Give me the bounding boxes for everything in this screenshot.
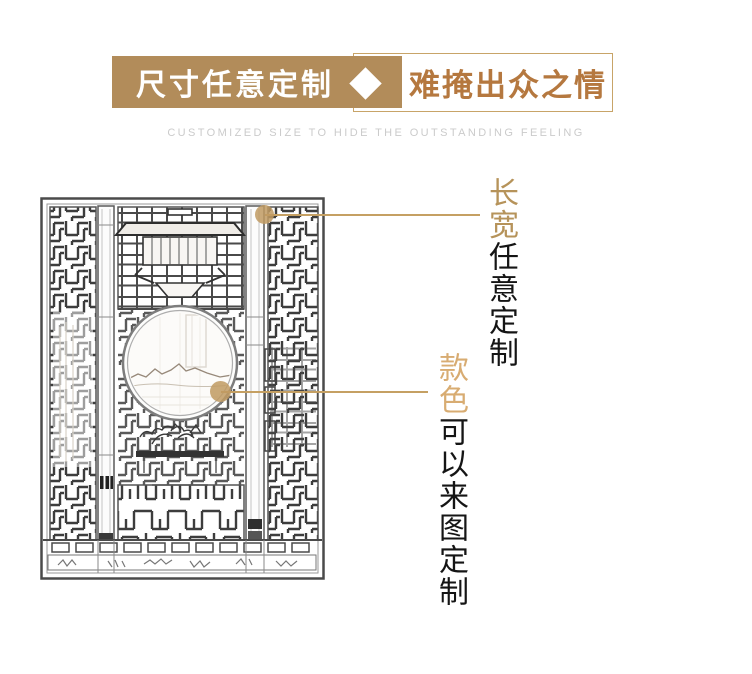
center-top-lattice <box>116 207 244 309</box>
callout-2-rest: 可以来图定制 <box>434 416 467 608</box>
lattice-screen-illustration <box>40 197 325 580</box>
callout-dot-2-icon <box>210 381 231 402</box>
left-lattice-panel <box>50 207 96 540</box>
left-stile <box>98 206 114 540</box>
right-lattice-panel <box>268 207 318 540</box>
callout-dot-1-icon <box>255 205 274 224</box>
callout-line-2 <box>221 391 428 393</box>
callout-1-rest: 任意定制 <box>484 241 517 369</box>
callout-2-highlight: 款色 <box>434 352 467 416</box>
page: 难掩出众之情 尺寸任意定制 CUSTOMIZED SIZE TO HIDE TH… <box>0 0 752 674</box>
callout-text-1: 长宽任意定制 <box>483 177 517 369</box>
banner-right-label: 难掩出众之情 <box>409 60 607 105</box>
callout-1-highlight: 长宽 <box>484 177 517 241</box>
banner-subtitle: CUSTOMIZED SIZE TO HIDE THE OUTSTANDING … <box>0 127 752 139</box>
banner-left-label: 尺寸任意定制 <box>136 60 334 104</box>
center-bottom-lattice <box>118 485 244 540</box>
callout-text-2: 款色可以来图定制 <box>433 352 467 608</box>
callout-line-1 <box>265 214 480 216</box>
